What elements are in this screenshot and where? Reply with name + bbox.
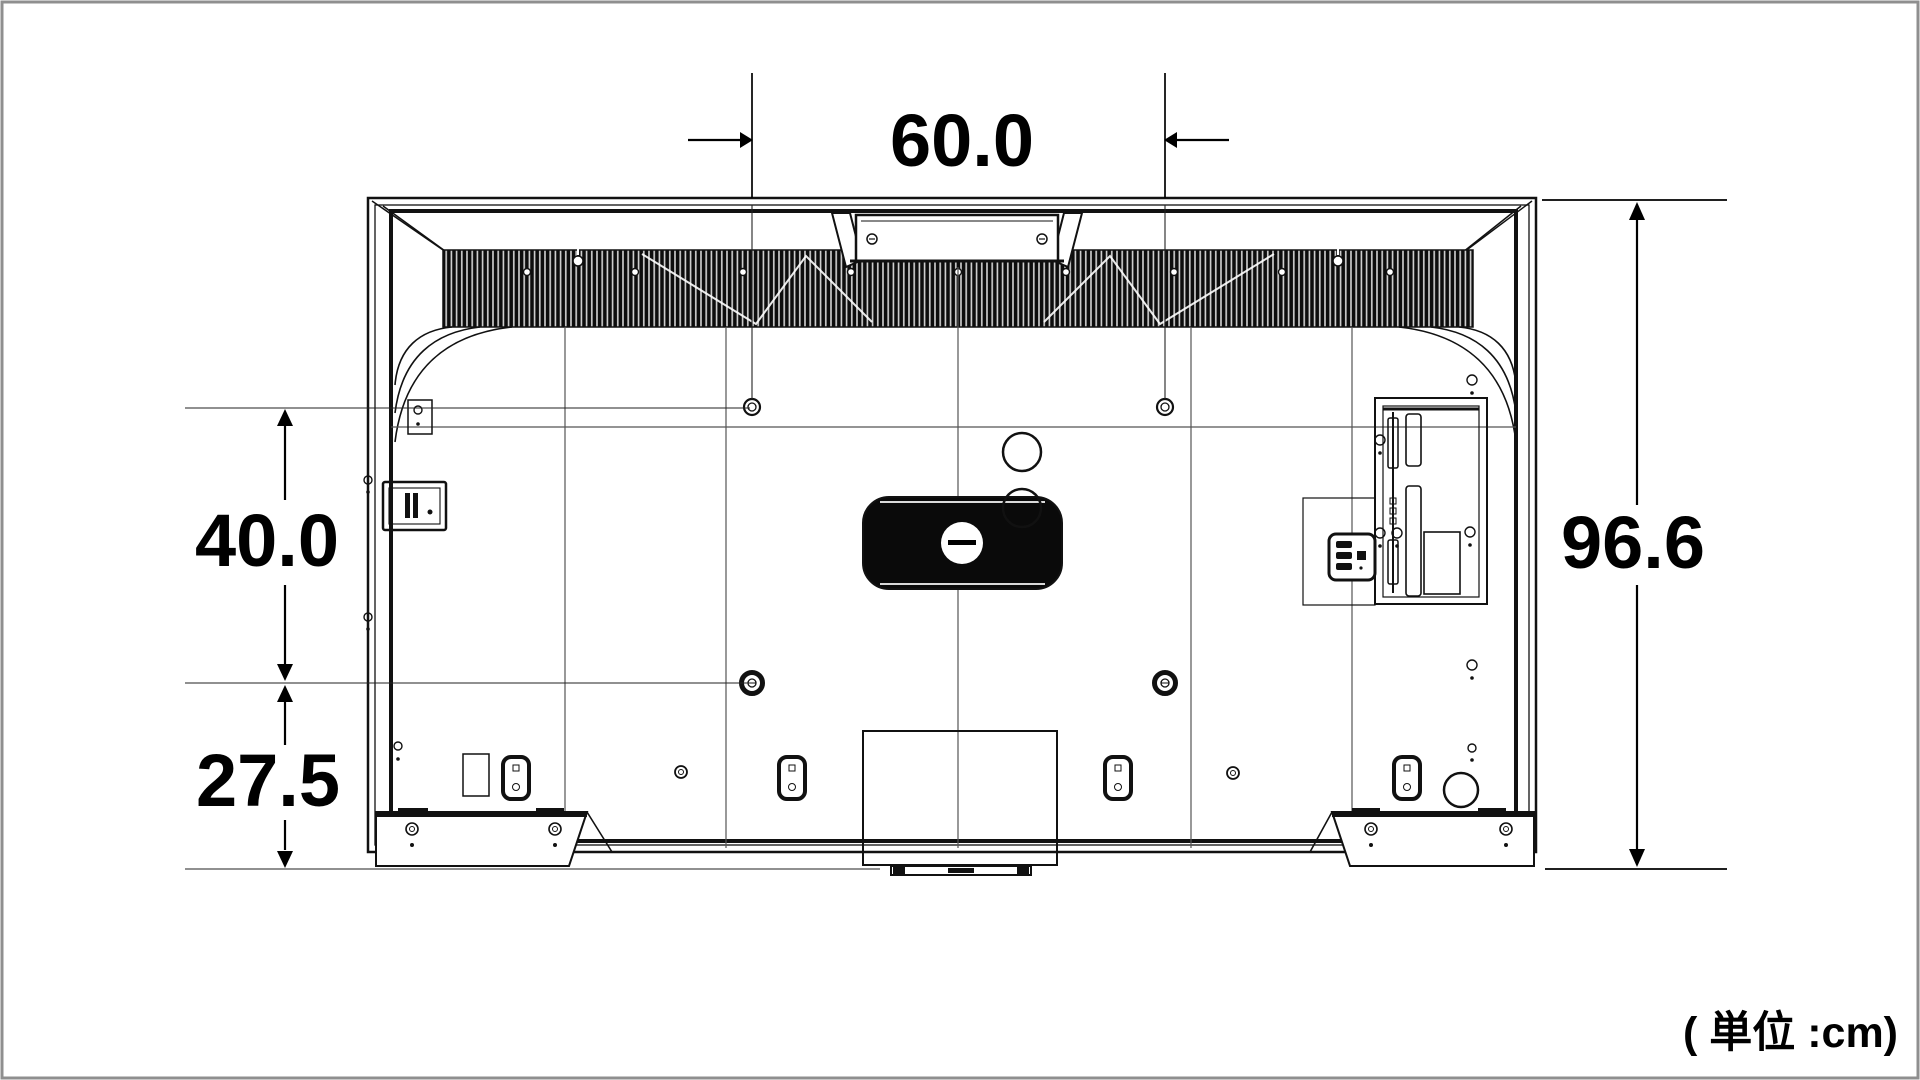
dimension-height-96-6: 96.6 <box>1542 200 1727 869</box>
unit-note: ( 単位 :cm) <box>1683 1009 1898 1057</box>
left-connector-panel <box>364 476 446 530</box>
dimension-label-60: 60.0 <box>890 99 1034 182</box>
stand-foot-right <box>1310 808 1534 866</box>
corner-arcs-right <box>1399 327 1516 442</box>
bottom-switch-3 <box>1105 757 1131 799</box>
bottom-cable-hole <box>1444 773 1478 807</box>
right-connector-panel <box>1375 398 1487 604</box>
stand-pedestal <box>891 866 1031 875</box>
tv-rear-dimension-drawing: 60.0 96.6 40.0 27.5 ( 単位 :cm) <box>0 0 1920 1080</box>
stand-foot-left <box>376 808 612 866</box>
right-lower-screw <box>1467 660 1477 680</box>
right-upper-screw <box>1467 375 1477 395</box>
bottom-switch-1 <box>503 757 529 799</box>
top-handle <box>832 213 1082 267</box>
dimension-label-96-6: 96.6 <box>1561 501 1705 584</box>
vesa-hole-top-left <box>744 399 760 415</box>
diagram-page: 60.0 96.6 40.0 27.5 ( 単位 :cm) <box>0 0 1920 1080</box>
corner-arcs-left <box>395 327 512 442</box>
dimension-label-40: 40.0 <box>195 499 339 582</box>
vesa-hole-bottom-right <box>1155 673 1176 694</box>
dimension-height-40: 40.0 <box>185 408 750 683</box>
vesa-hole-top-right <box>1157 399 1173 415</box>
bottom-switch-2 <box>779 757 805 799</box>
dimension-label-27-5: 27.5 <box>196 739 340 822</box>
bottom-switch-4 <box>1394 757 1420 799</box>
bottom-screws <box>394 742 1476 779</box>
woofer-speaker <box>863 497 1062 589</box>
left-bezel-box <box>408 400 432 434</box>
control-button-cluster <box>1303 498 1375 605</box>
bottom-label-plate <box>463 754 489 796</box>
